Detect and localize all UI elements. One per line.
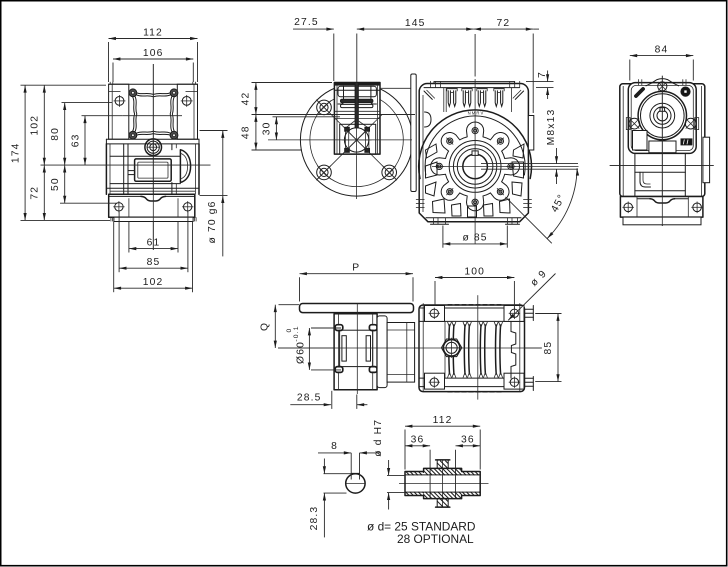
svg-text:27.5: 27.5 [294, 17, 319, 28]
svg-text:ø d H7: ø d H7 [373, 419, 384, 457]
svg-text:63: 63 [70, 134, 81, 148]
svg-text:145: 145 [405, 18, 426, 29]
svg-text:112: 112 [143, 27, 163, 38]
svg-text:0: 0 [286, 328, 293, 333]
svg-text:28.3: 28.3 [309, 506, 320, 531]
svg-text:72: 72 [497, 18, 511, 29]
svg-text:8: 8 [331, 441, 338, 452]
svg-text:112: 112 [433, 415, 453, 426]
svg-text:P: P [352, 263, 360, 274]
svg-text:M8x13: M8x13 [546, 109, 557, 146]
svg-text:42: 42 [241, 92, 252, 106]
svg-text:102: 102 [30, 115, 41, 136]
svg-text:NMRV: NMRV [468, 111, 485, 116]
svg-text:174: 174 [10, 142, 21, 163]
svg-text:80: 80 [50, 127, 61, 141]
svg-text:85: 85 [147, 257, 161, 268]
svg-text:36: 36 [411, 435, 425, 446]
svg-text:Ø60: Ø60 [296, 341, 307, 364]
svg-text:7: 7 [537, 71, 548, 78]
svg-text:Q: Q [260, 322, 271, 331]
svg-text:61: 61 [147, 237, 161, 248]
svg-text:36: 36 [461, 435, 475, 446]
svg-text:106: 106 [143, 48, 164, 59]
svg-text:72: 72 [30, 186, 41, 200]
svg-text:85: 85 [543, 341, 554, 355]
svg-text:-0.1: -0.1 [293, 325, 300, 341]
svg-text:50: 50 [50, 177, 61, 191]
svg-text:100: 100 [464, 266, 485, 277]
svg-text:30: 30 [261, 121, 272, 135]
svg-text:ø 85: ø 85 [462, 232, 487, 243]
svg-text:ø 70 g6: ø 70 g6 [207, 201, 218, 244]
svg-text:48: 48 [241, 125, 252, 139]
svg-text:28.5: 28.5 [297, 393, 322, 404]
svg-text:84: 84 [655, 44, 669, 55]
svg-text:28 OPTIONAL: 28 OPTIONAL [397, 532, 474, 546]
svg-text:102: 102 [143, 277, 164, 288]
